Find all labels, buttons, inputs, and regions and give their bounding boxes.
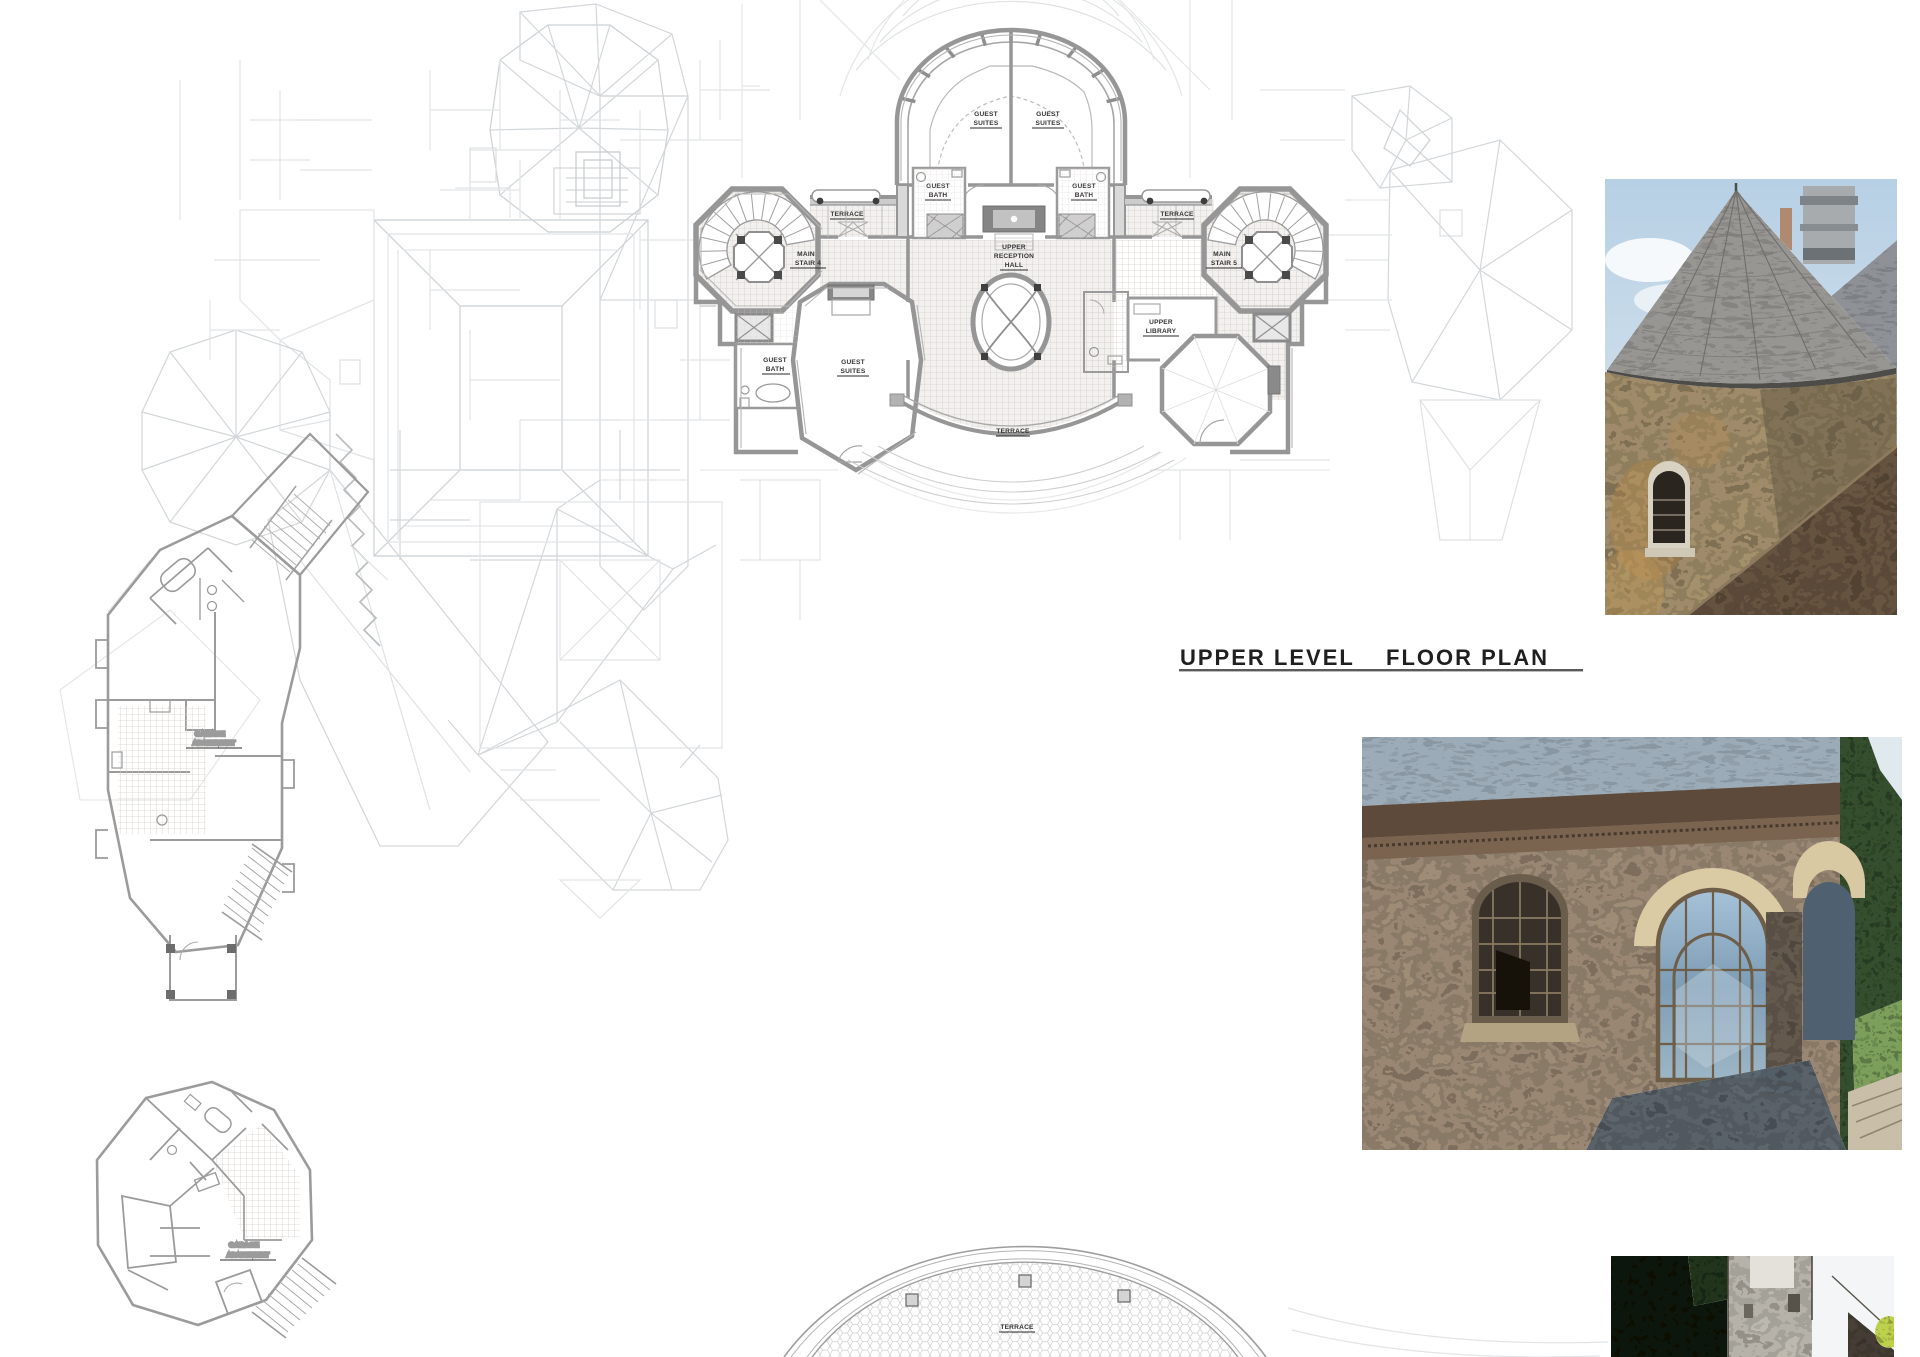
svg-text:UPPER: UPPER (1149, 319, 1173, 326)
svg-text:HALL: HALL (1005, 262, 1023, 269)
svg-text:LIBRARY: LIBRARY (1146, 328, 1177, 335)
svg-text:GARAGE: GARAGE (195, 731, 226, 738)
svg-text:UPPER: UPPER (1002, 244, 1026, 251)
svg-text:TERRACE: TERRACE (996, 428, 1030, 435)
svg-text:TERRACE: TERRACE (830, 211, 864, 218)
svg-text:FLOOR PLAN: FLOOR PLAN (1386, 645, 1549, 670)
svg-text:TERRACE: TERRACE (1000, 1324, 1034, 1331)
svg-text:SUITES: SUITES (973, 120, 998, 127)
svg-text:SUITES: SUITES (840, 368, 865, 375)
svg-text:BATH: BATH (766, 366, 785, 373)
svg-text:STAIR 5: STAIR 5 (1211, 260, 1237, 267)
svg-text:APARTMENT: APARTMENT (227, 1252, 270, 1259)
svg-text:UPPER LEVEL: UPPER LEVEL (1180, 645, 1355, 670)
svg-text:GUEST: GUEST (1036, 111, 1060, 118)
svg-text:GARAGE: GARAGE (229, 1242, 260, 1249)
svg-text:MAIN: MAIN (797, 251, 815, 258)
svg-text:TERRACE: TERRACE (1160, 211, 1194, 218)
svg-text:GUEST: GUEST (841, 359, 865, 366)
svg-text:MAIN: MAIN (1213, 251, 1231, 258)
svg-text:STAIR 4: STAIR 4 (795, 260, 821, 267)
svg-text:GUEST: GUEST (974, 111, 998, 118)
svg-text:SUITES: SUITES (1035, 120, 1060, 127)
svg-text:RECEPTION: RECEPTION (994, 253, 1034, 260)
svg-text:APARTMENT: APARTMENT (193, 740, 236, 747)
svg-text:GUEST: GUEST (763, 357, 787, 364)
